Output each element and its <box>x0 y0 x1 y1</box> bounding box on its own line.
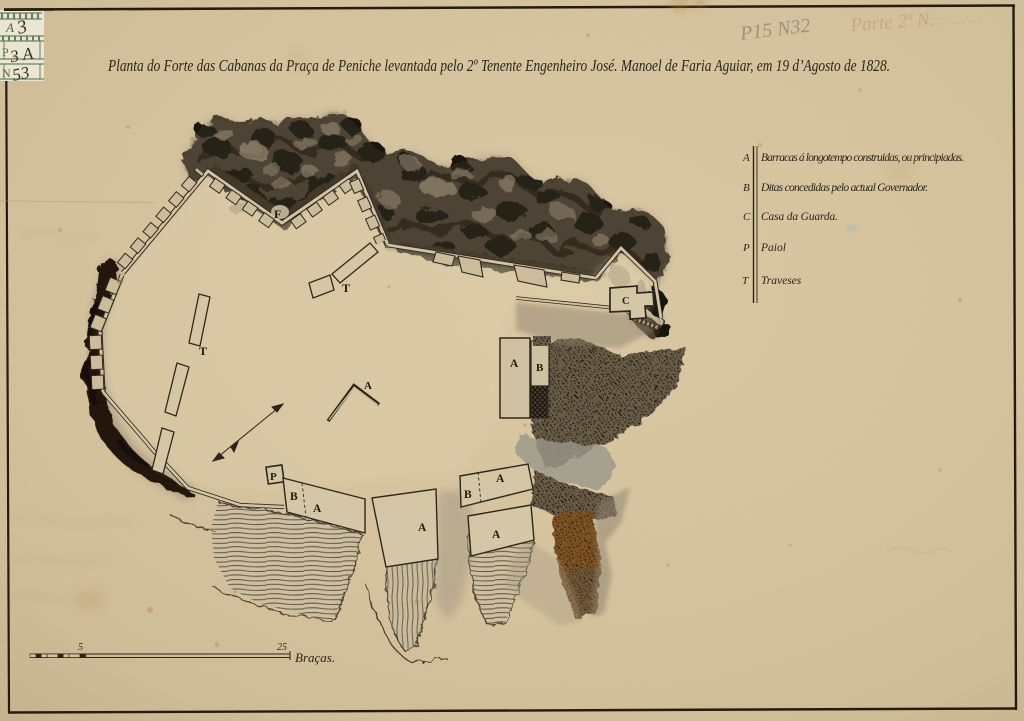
svg-text:F: F <box>274 207 281 221</box>
svg-text:5: 5 <box>78 642 83 653</box>
svg-text:Paiol: Paiol <box>760 242 786 254</box>
svg-text:T: T <box>199 344 207 358</box>
svg-text:A: A <box>418 522 427 534</box>
svg-text:B: B <box>290 491 298 503</box>
svg-text:Braças.: Braças. <box>295 650 335 665</box>
svg-text:C: C <box>622 296 630 307</box>
svg-text:B: B <box>464 489 472 501</box>
svg-text:Traveses: Traveses <box>761 275 802 287</box>
svg-text:A: A <box>496 473 505 485</box>
svg-text:P: P <box>270 471 277 483</box>
svg-text:Barracas á longotempo construi: Barracas á longotempo construidas, ou pr… <box>761 152 964 164</box>
svg-text:Planta do Forte das Cabanas da: Planta do Forte das Cabanas da Praça de … <box>107 56 890 75</box>
svg-text:T: T <box>742 275 749 287</box>
svg-text:C: C <box>743 211 751 223</box>
svg-text:N: N <box>2 66 11 80</box>
svg-text:25: 25 <box>277 642 287 653</box>
svg-text:A: A <box>510 358 519 370</box>
svg-text:P: P <box>742 242 750 254</box>
svg-text:B: B <box>743 182 750 194</box>
svg-text:A: A <box>5 20 14 35</box>
svg-text:B: B <box>536 362 544 374</box>
svg-text:A: A <box>364 380 372 392</box>
svg-text:A: A <box>313 503 322 515</box>
svg-text:T: T <box>342 281 350 295</box>
svg-text:A: A <box>742 152 750 164</box>
svg-text:Casa da Guarda.: Casa da Guarda. <box>761 211 838 223</box>
svg-text:A: A <box>492 529 501 541</box>
